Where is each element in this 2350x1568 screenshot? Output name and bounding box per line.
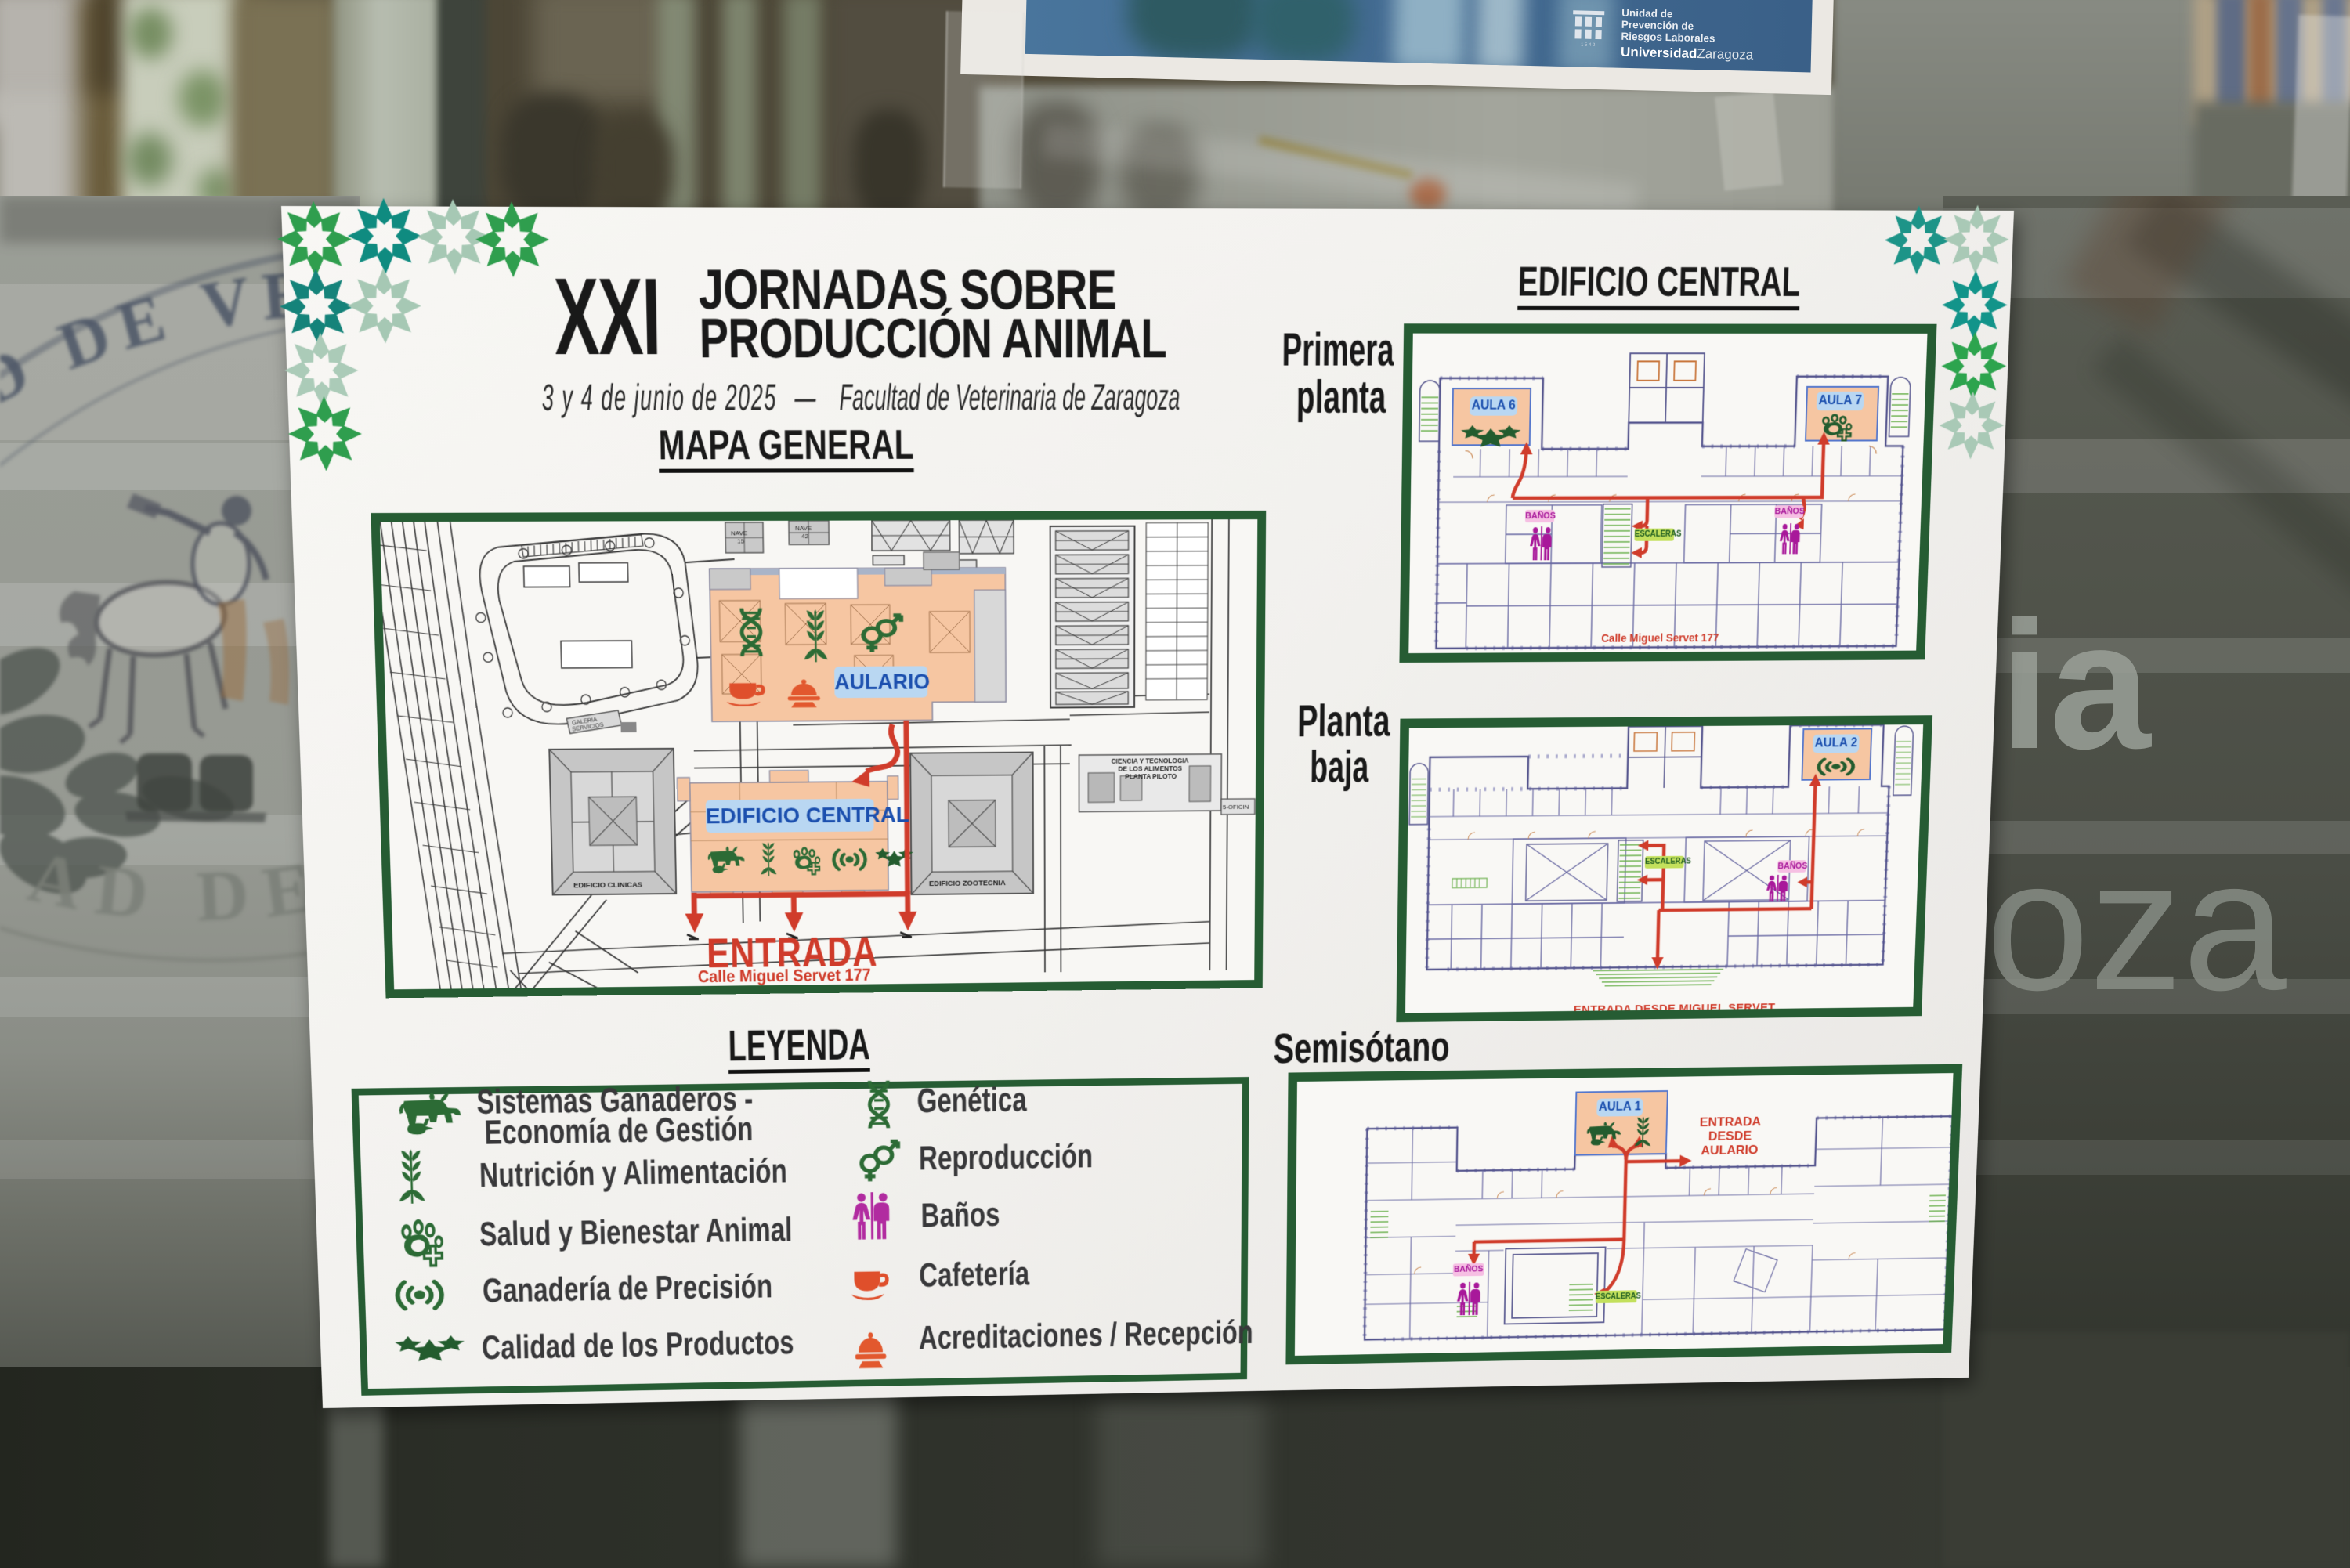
svg-text:1 5 4 2: 1 5 4 2 <box>1581 43 1596 48</box>
svg-text:DE LOS ALIMENTOS: DE LOS ALIMENTOS <box>1118 764 1182 772</box>
svg-text:CIENCIA Y TECNOLOGIA: CIENCIA Y TECNOLOGIA <box>1112 757 1190 764</box>
svg-text:42: 42 <box>801 532 808 540</box>
svg-text:5-OFICIN: 5-OFICIN <box>1223 803 1249 811</box>
svg-text:NAVE: NAVE <box>795 524 812 532</box>
svg-text:EDIFICIO CLINICAS: EDIFICIO CLINICAS <box>573 881 642 890</box>
svg-text:Calle Miguel Servet 177: Calle Miguel Servet 177 <box>1601 633 1719 645</box>
svg-text:EDIFICIO ZOOTECNIA: EDIFICIO ZOOTECNIA <box>929 880 1006 888</box>
svg-text:PLANTA PILOTO: PLANTA PILOTO <box>1125 772 1177 780</box>
svg-text:AD DE: AD DE <box>23 836 334 937</box>
svg-text:NAVE: NAVE <box>731 529 748 537</box>
svg-text:15: 15 <box>737 537 744 545</box>
